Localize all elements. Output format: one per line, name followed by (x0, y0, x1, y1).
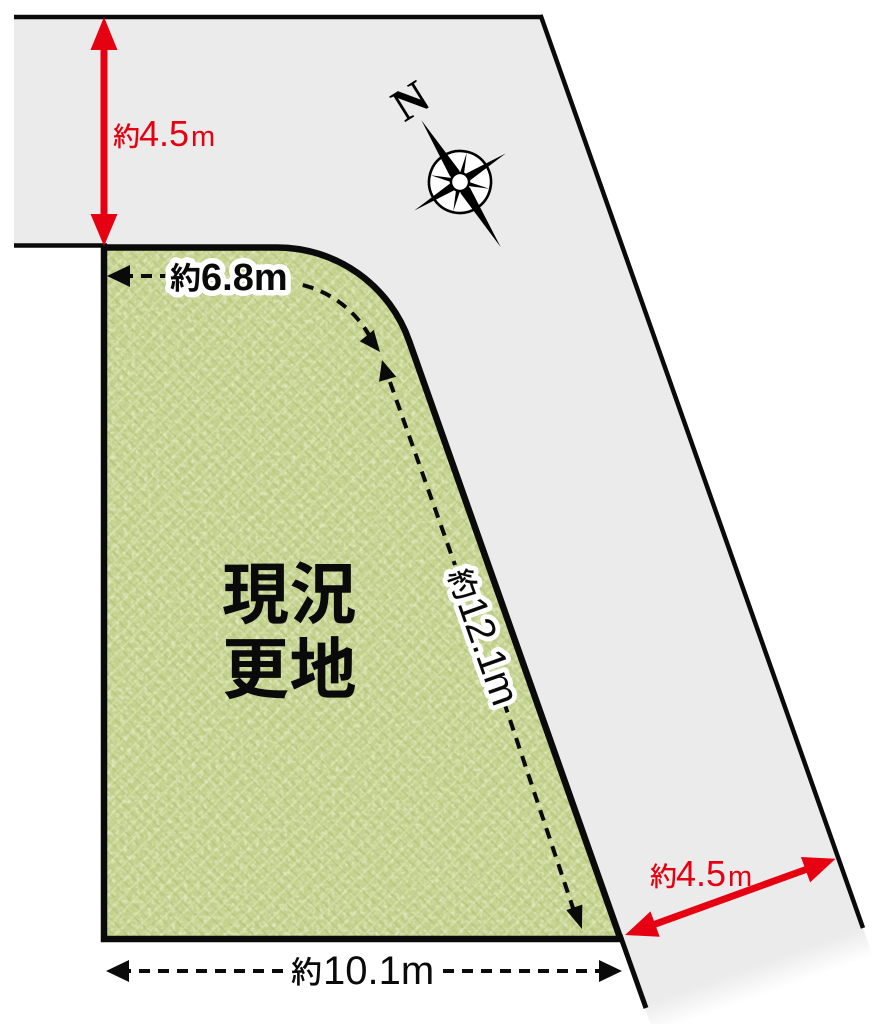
svg-text:10.1m: 10.1m (323, 949, 434, 993)
svg-text:4.5: 4.5 (139, 113, 189, 154)
svg-text:m: m (191, 121, 215, 153)
svg-text:6.8m: 6.8m (201, 257, 288, 299)
svg-text:4.5: 4.5 (676, 853, 726, 894)
svg-text:m: m (728, 861, 752, 893)
